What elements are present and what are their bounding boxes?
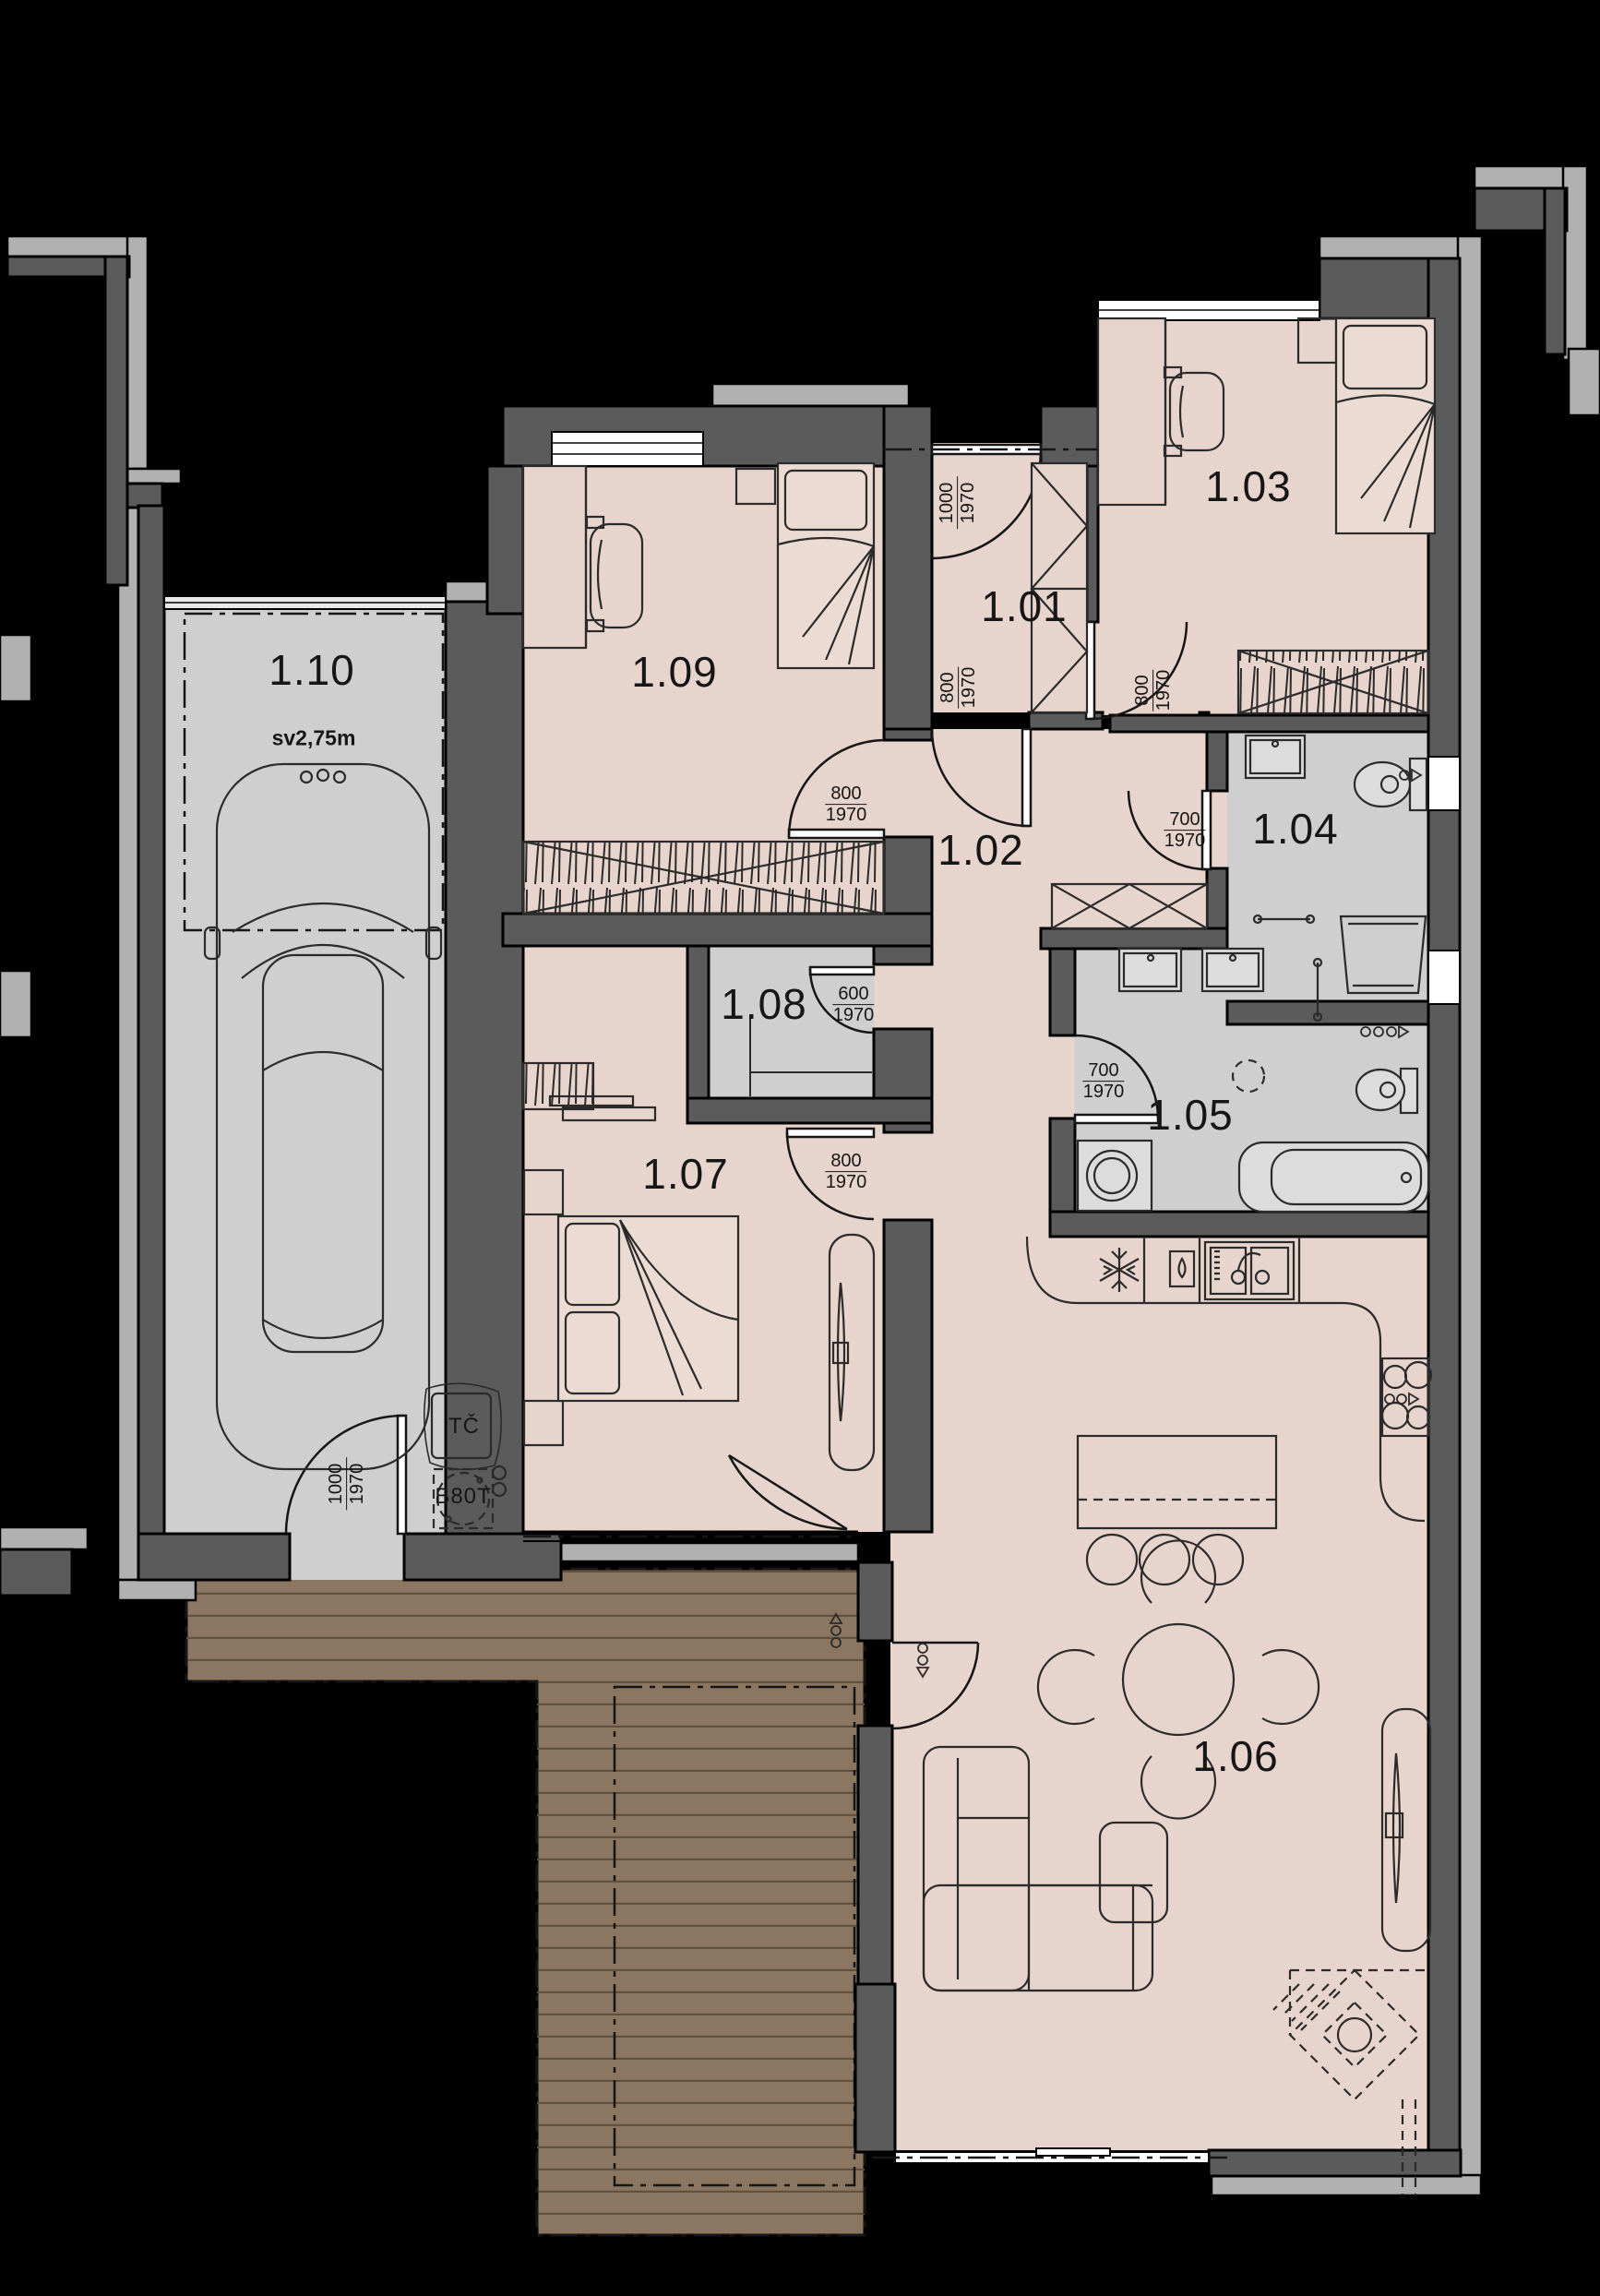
room-label-110: 1.10 — [269, 645, 355, 695]
room-label-107: 1.07 — [642, 1149, 729, 1199]
hall-closet — [1052, 884, 1207, 928]
door-dim-105: 7001970 — [1082, 1060, 1124, 1103]
floor-plan-drawing — [0, 0, 1600, 2296]
door-dim-entry: 10001970 — [937, 477, 979, 530]
room-label-105: 1.05 — [1147, 1090, 1234, 1140]
door-dim-104: 7001970 — [1164, 809, 1205, 852]
door-dim-107: 8001970 — [825, 1151, 866, 1193]
room-label-103: 1.03 — [1205, 461, 1292, 511]
toilet-105 — [1356, 1069, 1417, 1113]
door-dim-109: 8001970 — [825, 783, 866, 826]
room-label-104: 1.04 — [1252, 804, 1339, 854]
washing-machine — [1078, 1141, 1152, 1211]
bed-109 — [778, 463, 874, 668]
bed-103 — [1336, 318, 1435, 533]
room-label-106: 1.06 — [1192, 1731, 1279, 1781]
door-dim-108: 6001970 — [832, 984, 874, 1026]
door-dim-103: 8001970 — [1132, 669, 1175, 711]
garage-door — [164, 596, 446, 609]
clear-height-label: sv2,75m — [272, 726, 356, 751]
door-dim-101: 8001970 — [937, 666, 980, 708]
bathtub — [1239, 1142, 1428, 1212]
boiler-label: B80T — [435, 1484, 491, 1510]
window-bedroom-109 — [552, 432, 703, 466]
window-bedroom-103 — [1098, 300, 1319, 320]
bed-107 — [558, 1216, 738, 1401]
room-label-102: 1.02 — [937, 825, 1024, 875]
floor-plan-page: 1.10 sv2,75m 1.09 1.01 1.03 1.02 1.04 1.… — [0, 0, 1600, 2296]
wardrobe-103 — [1238, 651, 1428, 713]
wardrobe-109 — [523, 842, 884, 914]
door-dim-garage-exit: 10001970 — [326, 1458, 368, 1511]
room-label-108: 1.08 — [721, 979, 807, 1029]
heat-pump-label: TČ — [448, 1414, 480, 1440]
room-label-101: 1.01 — [981, 581, 1068, 631]
toilet-104 — [1355, 759, 1427, 810]
room-label-109: 1.09 — [631, 647, 718, 697]
